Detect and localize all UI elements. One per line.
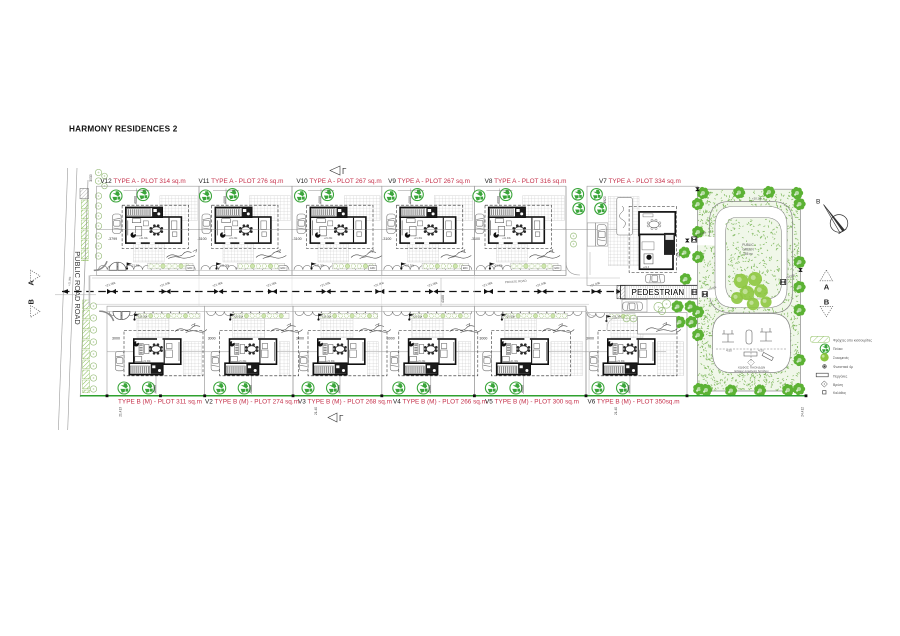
svg-text:+21.30k: +21.30k bbox=[131, 264, 141, 268]
svg-text:V5 TYPE B (M) - PLOT 300 sq.m: V5 TYPE B (M) - PLOT 300 sq.m bbox=[485, 398, 579, 405]
svg-text:+21.30k: +21.30k bbox=[322, 315, 332, 319]
svg-text:4000: 4000 bbox=[153, 385, 157, 393]
svg-text:-3100: -3100 bbox=[292, 237, 301, 241]
svg-text:Εδαφος ασφαλείας δαπέδου: Εδαφος ασφαλείας δαπέδου bbox=[735, 369, 769, 373]
svg-text:3000: 3000 bbox=[296, 336, 304, 340]
svg-text:Περγόλες: Περγόλες bbox=[833, 374, 848, 378]
svg-text:3000: 3000 bbox=[208, 336, 216, 340]
svg-text:PEDESTRIAN: PEDESTRIAN bbox=[632, 288, 685, 297]
svg-text:4.50: 4.50 bbox=[758, 348, 764, 352]
svg-text:B: B bbox=[816, 199, 820, 206]
svg-text:V9 TYPE A - PLOT 267 sq.m: V9 TYPE A - PLOT 267 sq.m bbox=[388, 178, 470, 185]
svg-text:4000: 4000 bbox=[520, 385, 524, 393]
svg-text:A: A bbox=[824, 283, 830, 292]
svg-text:4.50: 4.50 bbox=[726, 348, 732, 352]
svg-text:+21.30k: +21.30k bbox=[413, 315, 423, 319]
svg-text:Φωτιστικά 4μ: Φωτιστικά 4μ bbox=[833, 365, 853, 369]
svg-text:V10 TYPE A - PLOT 267 sq.m: V10 TYPE A - PLOT 267 sq.m bbox=[296, 178, 381, 185]
svg-text:4000: 4000 bbox=[428, 385, 432, 393]
svg-text:4000: 4000 bbox=[408, 196, 412, 204]
svg-text:+21.30k: +21.30k bbox=[616, 360, 625, 363]
svg-text:+21.30k: +21.30k bbox=[229, 237, 238, 240]
svg-text:V6 TYPE B (M) - PLOT 350sq.m: V6 TYPE B (M) - PLOT 350sq.m bbox=[587, 398, 679, 405]
svg-text:4000: 4000 bbox=[249, 385, 253, 393]
svg-text:ERC: ERC bbox=[370, 267, 375, 270]
svg-text:3000: 3000 bbox=[479, 336, 487, 340]
svg-text:ERC: ERC bbox=[463, 267, 468, 270]
svg-text:4000: 4000 bbox=[337, 385, 341, 393]
svg-text:+21.30k: +21.30k bbox=[417, 360, 426, 363]
svg-text:+21.3: +21.3 bbox=[643, 266, 650, 269]
svg-text:-3799: -3799 bbox=[108, 237, 117, 241]
svg-text:V2 TYPE B (M) - PLOT 274 sq.m: V2 TYPE B (M) - PLOT 274 sq.m bbox=[205, 398, 299, 405]
svg-text:4000: 4000 bbox=[496, 196, 500, 204]
svg-text:V8 TYPE A - PLOT 316 sq.m: V8 TYPE A - PLOT 316 sq.m bbox=[485, 178, 567, 185]
svg-text:4000: 4000 bbox=[627, 385, 631, 393]
svg-text:B: B bbox=[824, 297, 830, 306]
svg-text:Συκαμινιές: Συκαμινιές bbox=[833, 356, 849, 360]
svg-text:ERC: ERC bbox=[554, 267, 559, 270]
svg-text:Πεύκα: Πεύκα bbox=[833, 347, 842, 351]
svg-text:Γ: Γ bbox=[342, 167, 347, 176]
svg-text:3030: 3030 bbox=[89, 174, 93, 182]
svg-text:PUBLIC ROAD ROAD: PUBLIC ROAD ROAD bbox=[73, 251, 82, 325]
svg-text:+21.30k: +21.30k bbox=[238, 360, 247, 363]
svg-text:-3100: -3100 bbox=[382, 237, 391, 241]
svg-text:4000: 4000 bbox=[223, 196, 227, 204]
svg-text:-3100: -3100 bbox=[197, 237, 206, 241]
svg-text:V12 TYPE A - PLOT 314 sq.m: V12 TYPE A - PLOT 314 sq.m bbox=[100, 178, 185, 185]
svg-text:Γ: Γ bbox=[339, 414, 344, 423]
svg-text:+21.30k: +21.30k bbox=[502, 237, 511, 240]
svg-text:V7 TYPE A - PLOT 334 sq.m: V7 TYPE A - PLOT 334 sq.m bbox=[599, 178, 681, 185]
svg-text:HARMONY RESIDENCES 2: HARMONY RESIDENCES 2 bbox=[69, 125, 178, 134]
svg-text:+21.30k: +21.30k bbox=[234, 315, 244, 319]
svg-text:4100: 4100 bbox=[441, 295, 445, 303]
svg-text:4000: 4000 bbox=[134, 196, 138, 204]
svg-text:+21.30k: +21.30k bbox=[414, 237, 423, 240]
svg-text:V3 TYPE B (M) - PLOT 268 sq.m: V3 TYPE B (M) - PLOT 268 sq.m bbox=[298, 398, 392, 405]
svg-text:+21.30k: +21.30k bbox=[220, 264, 230, 268]
svg-text:Καλάθος: Καλάθος bbox=[833, 391, 847, 395]
svg-text:Βρύση: Βρύση bbox=[833, 383, 843, 387]
svg-text:A: A bbox=[27, 280, 36, 286]
svg-text:+20.10k: +20.10k bbox=[752, 196, 763, 200]
svg-text:B: B bbox=[27, 299, 36, 304]
svg-text:3000: 3000 bbox=[387, 336, 395, 340]
svg-text:24.412: 24.412 bbox=[801, 407, 805, 417]
svg-text:+21.30k: +21.30k bbox=[324, 237, 333, 240]
svg-text:Φράχτες απο κισσουρίδες: Φράχτες απο κισσουρίδες bbox=[833, 338, 872, 342]
svg-text:ERC: ERC bbox=[187, 267, 192, 270]
svg-text:+21.30k: +21.30k bbox=[405, 264, 415, 268]
svg-text:+21.30k: +21.30k bbox=[326, 360, 335, 363]
svg-text:3000: 3000 bbox=[112, 336, 120, 340]
svg-text:+21.30k: +21.30k bbox=[493, 264, 503, 268]
svg-text:+21.30k: +21.30k bbox=[509, 360, 518, 363]
svg-text:+21.30k: +21.30k bbox=[142, 360, 151, 363]
svg-text:GREEN: GREEN bbox=[742, 247, 754, 251]
svg-text:V11 TYPE A - PLOT 276 sq.m: V11 TYPE A - PLOT 276 sq.m bbox=[199, 178, 284, 185]
svg-text:-3100: -3100 bbox=[471, 237, 480, 241]
svg-text:PUBLIC: PUBLIC bbox=[742, 243, 754, 247]
svg-text:+21.30k: +21.30k bbox=[505, 315, 515, 319]
svg-text:755 m²: 755 m² bbox=[743, 252, 753, 256]
svg-text:4000: 4000 bbox=[318, 196, 322, 204]
svg-text:21.40: 21.40 bbox=[614, 407, 618, 415]
svg-text:3000: 3000 bbox=[586, 336, 594, 340]
svg-text:+21.30k: +21.30k bbox=[138, 315, 148, 319]
svg-text:125: 125 bbox=[677, 252, 681, 258]
svg-text:+21.30k: +21.30k bbox=[139, 237, 148, 240]
svg-text:+21.30k: +21.30k bbox=[315, 264, 325, 268]
svg-text:V4 TYPE B (M) - PLOT 266 sq.m: V4 TYPE B (M) - PLOT 266 sq.m bbox=[393, 398, 487, 405]
svg-text:TYPE B (M) - PLOT 311 sq.m: TYPE B (M) - PLOT 311 sq.m bbox=[118, 398, 202, 405]
svg-text:4920: 4920 bbox=[603, 196, 607, 204]
svg-text:ERC: ERC bbox=[280, 267, 285, 270]
svg-text:ΧΩΦΟΣ ΠΑΟΝΔΩΝ: ΧΩΦΟΣ ΠΑΟΝΔΩΝ bbox=[738, 366, 766, 370]
svg-text:21.413: 21.413 bbox=[119, 407, 123, 417]
svg-text:+21.30k: +21.30k bbox=[612, 315, 622, 319]
svg-text:21.40: 21.40 bbox=[314, 407, 318, 415]
